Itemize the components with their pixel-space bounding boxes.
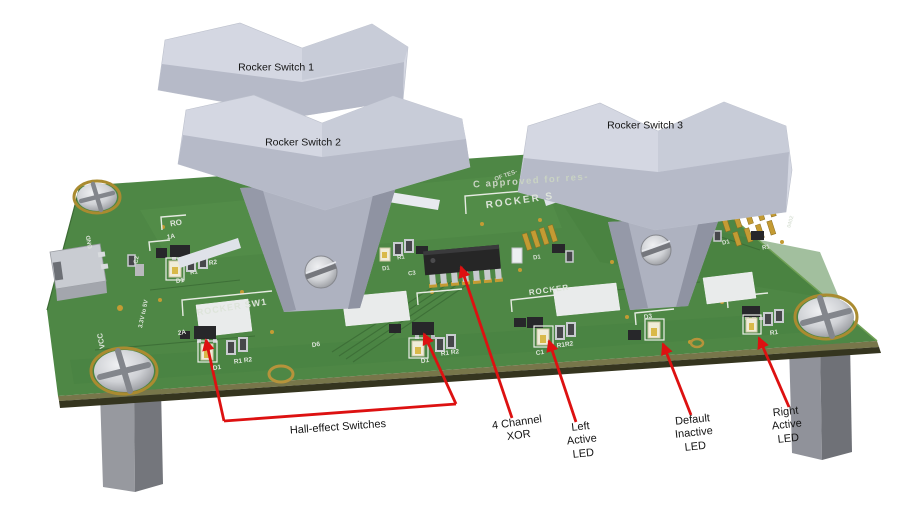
silk-c3: C3 [408, 270, 416, 277]
silk-d6: D6 [311, 341, 320, 349]
pcb-figure: Rocker Switch 1 Rocker Switch 2 Rocker S… [0, 0, 921, 510]
right-active-led-label: Right Active LED [770, 404, 804, 447]
mounting-screw-right [795, 295, 857, 339]
rocker-switch-1-label: Rocker Switch 1 [238, 62, 314, 75]
silk-rocker1-frag: RO [169, 218, 182, 229]
mounting-hole [269, 366, 293, 382]
mounting-screw-topleft [74, 181, 120, 213]
hall-connector [224, 404, 456, 421]
silk-d1-b: D1 [212, 364, 221, 372]
silk-r1-g: R1 [397, 254, 405, 261]
mounting-screw-bottomleft [91, 348, 157, 394]
silk-d1-g: D1 [382, 265, 390, 272]
rocker-switch-2-label: Rocker Switch 2 [265, 137, 341, 150]
silk-1a: 1A [166, 233, 175, 241]
silk-d1-h: D1 [533, 254, 541, 261]
silk-r1-f: R1 [769, 329, 778, 337]
silk-c1: C1 [535, 349, 544, 357]
silk-r1-a: R1 [190, 269, 198, 276]
silk-d3: D3 [643, 313, 652, 321]
silk-d1-c: D1 [420, 357, 429, 365]
silk-r2-a: R2 [208, 259, 217, 267]
rocker-switch-3-label: Rocker Switch 3 [607, 120, 683, 133]
xor-ic [423, 245, 503, 289]
micro-usb-connector [50, 244, 108, 301]
left-active-led-label: Left Active LED [565, 419, 599, 462]
mounting-hole-small [691, 339, 703, 347]
silk-2a: 2A [177, 329, 186, 337]
default-inactive-led-label: Default Inactive LED [673, 412, 715, 456]
silk-d1-a: D1 [175, 277, 184, 285]
